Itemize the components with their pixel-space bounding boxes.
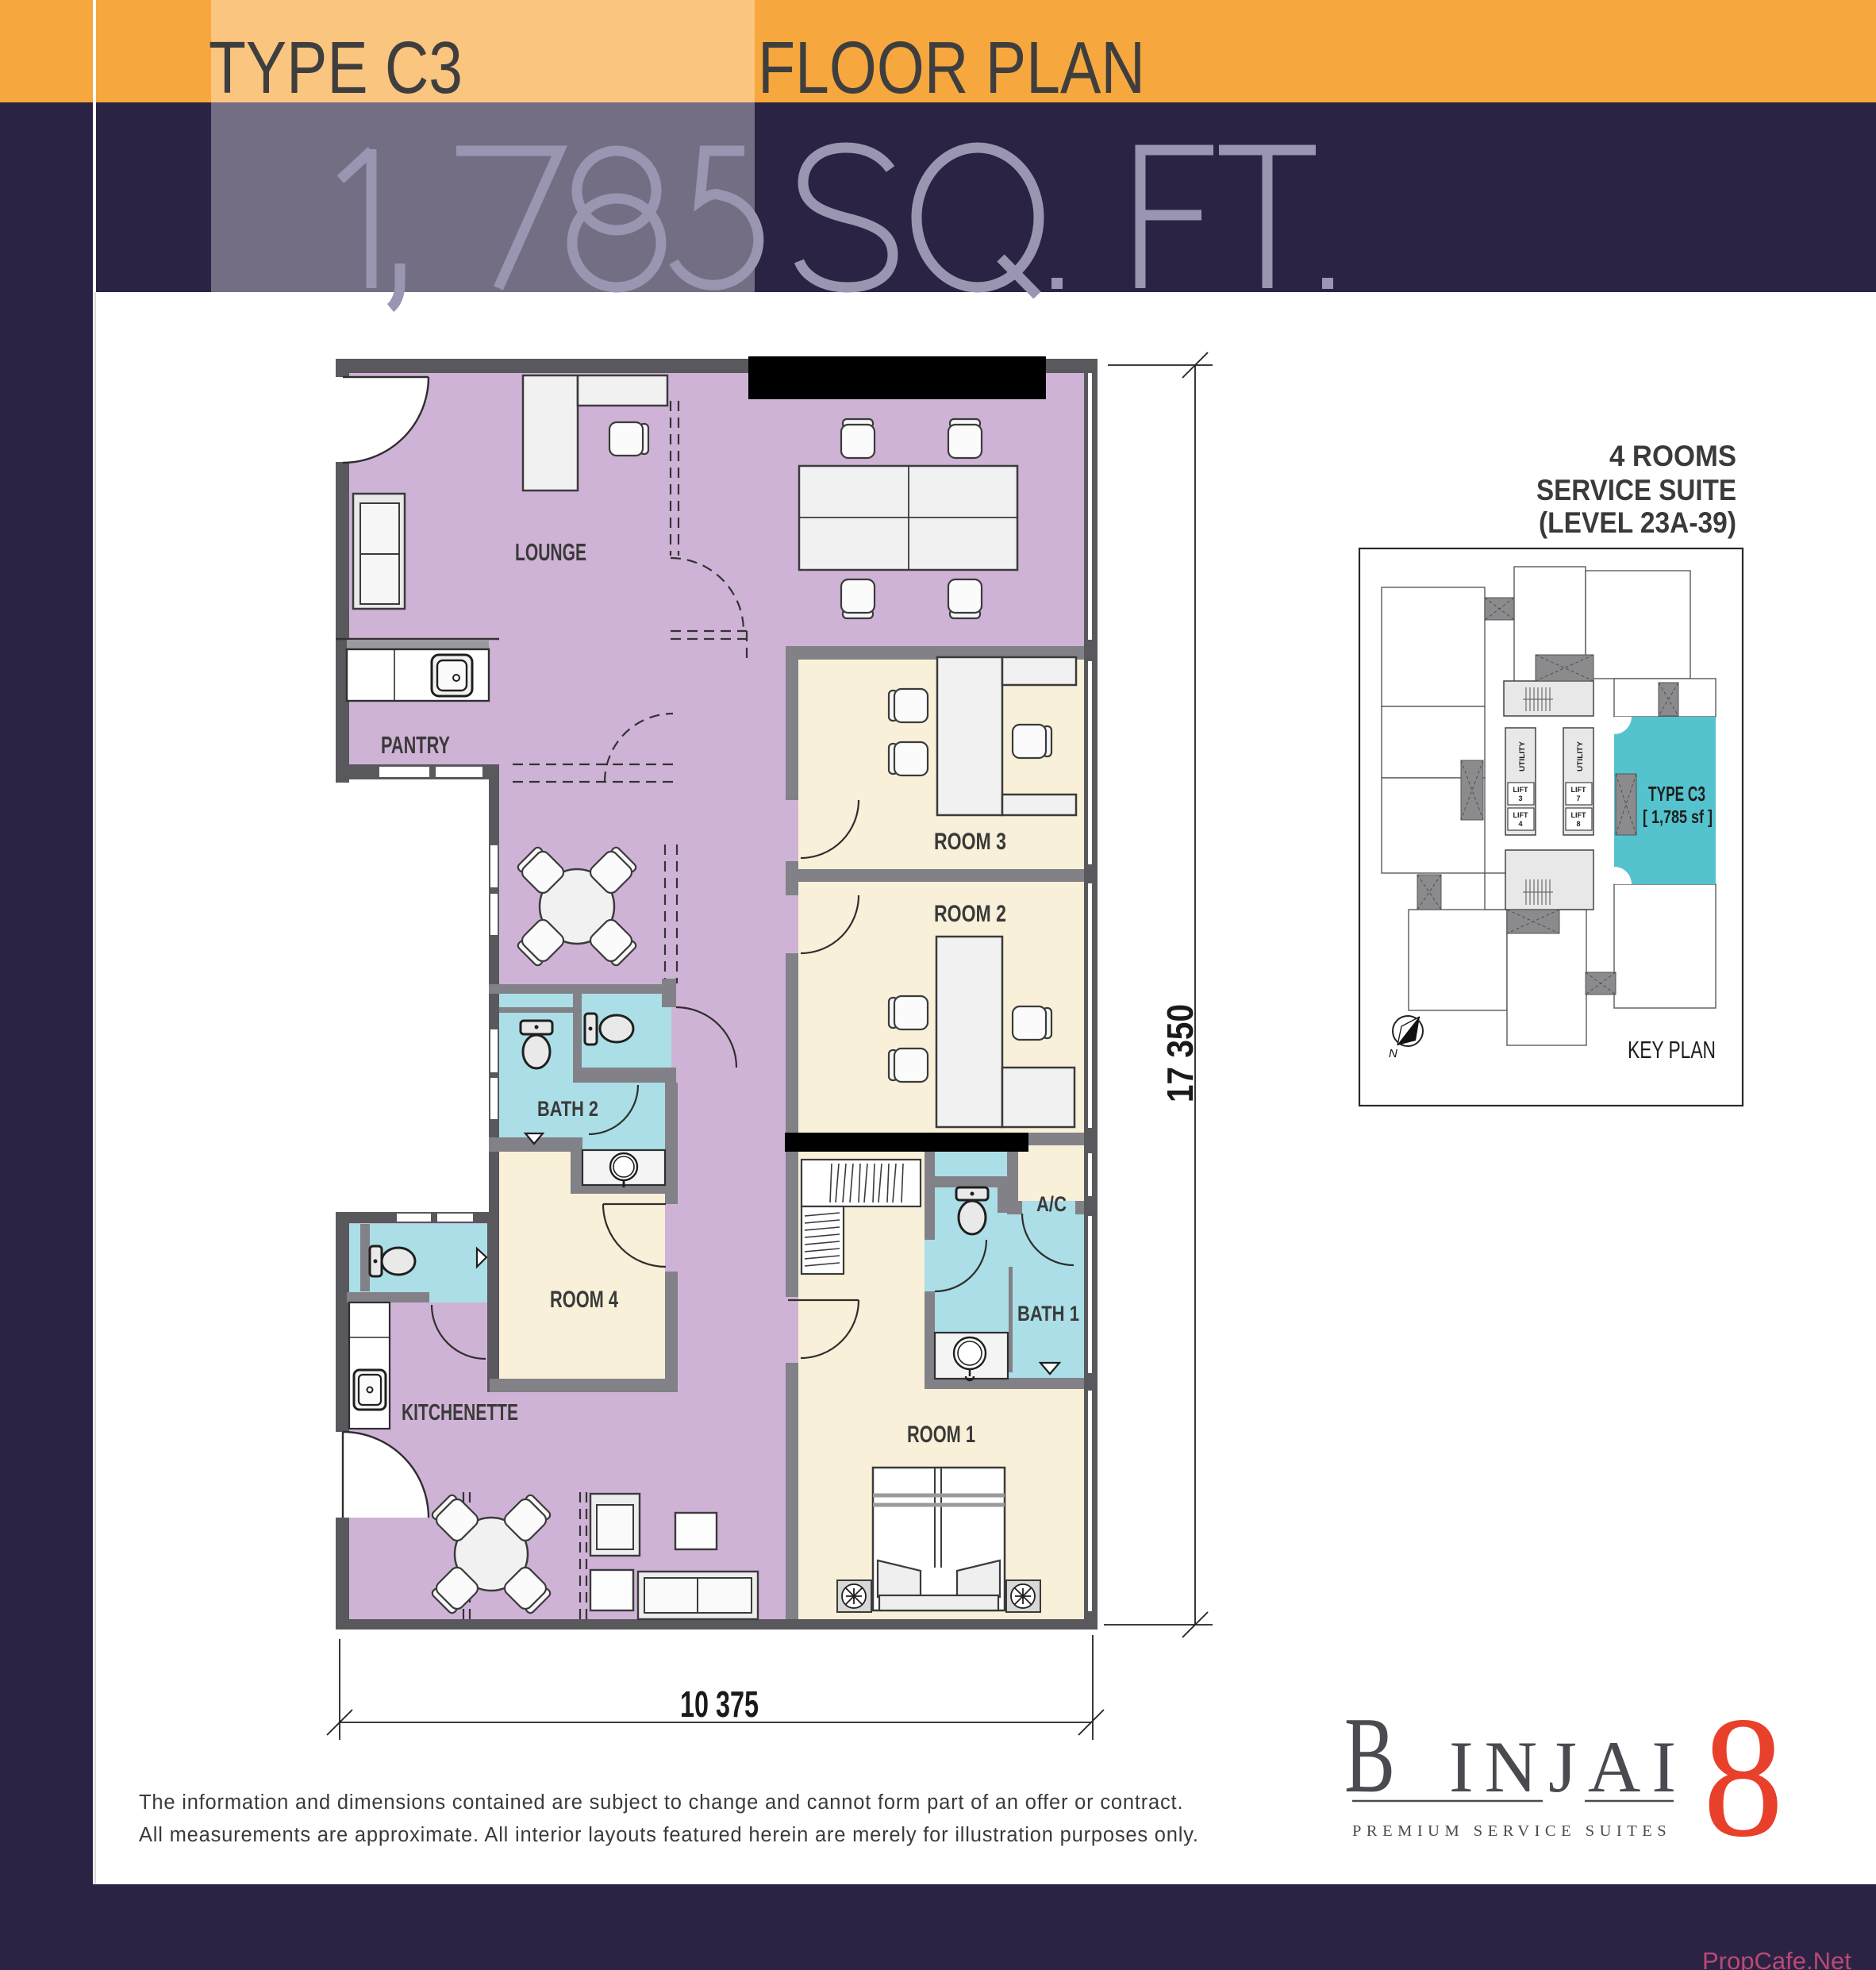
svg-text:4 ROOMS: 4 ROOMS bbox=[1609, 440, 1736, 472]
svg-text:KITCHENETTE: KITCHENETTE bbox=[402, 1400, 518, 1426]
svg-text:LOUNGE: LOUNGE bbox=[515, 538, 586, 566]
svg-text:8: 8 bbox=[1576, 820, 1580, 828]
svg-text:A/C: A/C bbox=[1036, 1192, 1067, 1216]
svg-text:KEY PLAN: KEY PLAN bbox=[1628, 1036, 1716, 1064]
svg-text:The information and dimensions: The information and dimensions contained… bbox=[139, 1791, 1183, 1814]
svg-text:[ 1,785 sf ]: [ 1,785 sf ] bbox=[1643, 806, 1713, 827]
svg-text:LIFT: LIFT bbox=[1571, 811, 1586, 819]
svg-text:UTILITY: UTILITY bbox=[1518, 741, 1527, 771]
svg-text:LIFT: LIFT bbox=[1513, 811, 1528, 819]
svg-text:TYPE C3: TYPE C3 bbox=[209, 26, 463, 109]
svg-text:UTILITY: UTILITY bbox=[1576, 741, 1585, 771]
svg-text:SERVICE SUITE: SERVICE SUITE bbox=[1536, 474, 1736, 506]
svg-text:ROOM 2: ROOM 2 bbox=[934, 901, 1006, 927]
svg-text:PREMIUM SERVICE SUITES: PREMIUM SERVICE SUITES bbox=[1352, 1822, 1671, 1840]
svg-text:PANTRY: PANTRY bbox=[381, 731, 450, 759]
svg-text:ROOM 4: ROOM 4 bbox=[550, 1287, 618, 1313]
svg-text:(LEVEL 23A-39): (LEVEL 23A-39) bbox=[1539, 506, 1736, 539]
svg-text:PropCafe.Net: PropCafe.Net bbox=[1702, 1947, 1851, 1970]
svg-text:B: B bbox=[1344, 1695, 1395, 1815]
svg-text:All measurements are approxima: All measurements are approximate. All in… bbox=[139, 1824, 1199, 1846]
svg-text:N: N bbox=[1389, 1047, 1397, 1060]
svg-text:17 350: 17 350 bbox=[1159, 1004, 1201, 1102]
svg-text:10 375: 10 375 bbox=[680, 1683, 759, 1725]
svg-text:FLOOR PLAN: FLOOR PLAN bbox=[758, 26, 1145, 109]
svg-text:LIFT: LIFT bbox=[1571, 786, 1586, 794]
svg-text:TYPE C3: TYPE C3 bbox=[1648, 782, 1705, 806]
svg-text:ROOM 3: ROOM 3 bbox=[934, 829, 1006, 855]
svg-text:7: 7 bbox=[1576, 795, 1580, 802]
svg-text:8: 8 bbox=[1703, 1680, 1783, 1872]
svg-text:3: 3 bbox=[1518, 795, 1522, 802]
svg-text:INJAI: INJAI bbox=[1449, 1726, 1687, 1807]
svg-text:ROOM 1: ROOM 1 bbox=[907, 1422, 975, 1448]
svg-text:BATH 1: BATH 1 bbox=[1017, 1302, 1079, 1326]
svg-text:4: 4 bbox=[1518, 820, 1522, 828]
svg-text:LIFT: LIFT bbox=[1513, 786, 1528, 794]
svg-text:BATH 2: BATH 2 bbox=[537, 1097, 598, 1121]
